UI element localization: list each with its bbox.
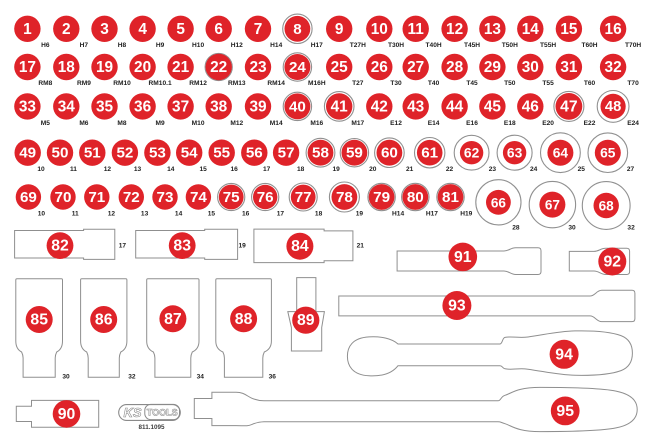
- svg-text:48: 48: [605, 99, 621, 115]
- svg-text:M5: M5: [41, 120, 50, 127]
- svg-text:61: 61: [421, 145, 438, 162]
- svg-text:62: 62: [464, 146, 480, 161]
- svg-text:T60: T60: [584, 80, 596, 87]
- svg-text:12: 12: [104, 166, 112, 173]
- svg-text:75: 75: [223, 189, 240, 206]
- svg-text:33: 33: [19, 98, 36, 115]
- svg-text:17: 17: [263, 166, 271, 173]
- svg-text:64: 64: [553, 146, 569, 161]
- svg-text:12: 12: [108, 210, 116, 217]
- svg-text:12: 12: [446, 21, 463, 38]
- svg-text:60: 60: [381, 145, 398, 162]
- svg-text:23: 23: [489, 166, 497, 173]
- svg-text:RM12: RM12: [189, 80, 207, 87]
- svg-text:18: 18: [297, 166, 305, 173]
- svg-text:37: 37: [172, 98, 189, 115]
- svg-text:11: 11: [72, 210, 79, 217]
- svg-text:E14: E14: [428, 120, 440, 127]
- svg-text:54: 54: [181, 145, 198, 162]
- svg-text:41: 41: [331, 98, 349, 115]
- svg-text:89: 89: [297, 312, 315, 329]
- svg-text:10: 10: [37, 166, 45, 173]
- svg-text:18: 18: [315, 210, 323, 217]
- svg-text:T27H: T27H: [350, 42, 366, 49]
- svg-text:50: 50: [52, 145, 69, 162]
- svg-text:68: 68: [599, 199, 615, 214]
- svg-text:38: 38: [210, 98, 228, 115]
- svg-text:45: 45: [484, 98, 502, 115]
- svg-text:E16: E16: [466, 120, 478, 127]
- svg-text:RM14: RM14: [267, 80, 285, 87]
- svg-text:T45: T45: [466, 80, 478, 87]
- svg-text:25: 25: [331, 59, 349, 76]
- svg-text:H19: H19: [460, 210, 472, 217]
- svg-text:T55: T55: [542, 80, 554, 87]
- svg-text:63: 63: [507, 146, 523, 161]
- svg-text:13: 13: [134, 166, 142, 173]
- svg-text:13: 13: [141, 210, 149, 217]
- svg-text:40: 40: [289, 98, 306, 115]
- svg-text:19: 19: [96, 59, 113, 76]
- svg-text:28: 28: [512, 224, 520, 231]
- svg-text:9: 9: [335, 21, 344, 38]
- svg-text:59: 59: [346, 145, 363, 162]
- svg-text:16: 16: [231, 166, 239, 173]
- svg-text:H8: H8: [118, 42, 127, 49]
- svg-text:35: 35: [96, 98, 114, 115]
- svg-text:66: 66: [491, 195, 507, 210]
- svg-text:47: 47: [560, 98, 578, 115]
- svg-text:RM10: RM10: [113, 80, 131, 87]
- svg-text:81: 81: [442, 189, 459, 206]
- svg-text:3: 3: [100, 21, 109, 38]
- svg-text:8: 8: [293, 21, 301, 38]
- svg-text:T45H: T45H: [464, 42, 480, 49]
- svg-text:E18: E18: [504, 120, 516, 127]
- svg-text:95: 95: [556, 403, 574, 420]
- svg-text:H17: H17: [426, 210, 438, 217]
- svg-text:92: 92: [604, 254, 622, 271]
- svg-text:27: 27: [627, 166, 635, 173]
- svg-text:30: 30: [568, 224, 576, 231]
- svg-text:11: 11: [70, 166, 77, 173]
- svg-text:M14: M14: [270, 120, 283, 127]
- svg-text:M12: M12: [230, 120, 243, 127]
- svg-text:83: 83: [173, 238, 191, 255]
- svg-text:T70: T70: [627, 80, 639, 87]
- svg-text:17: 17: [277, 210, 285, 217]
- svg-text:7: 7: [254, 21, 263, 38]
- svg-text:20: 20: [369, 166, 377, 173]
- svg-text:78: 78: [336, 189, 353, 206]
- svg-text:H10: H10: [192, 42, 204, 49]
- svg-text:51: 51: [84, 145, 101, 162]
- svg-text:30: 30: [62, 373, 70, 380]
- svg-text:TOOLS: TOOLS: [147, 407, 178, 417]
- svg-text:13: 13: [484, 21, 501, 38]
- svg-text:17: 17: [19, 59, 36, 76]
- svg-text:T30H: T30H: [388, 42, 404, 49]
- svg-text:T27: T27: [352, 80, 364, 87]
- svg-text:M9: M9: [156, 120, 165, 127]
- svg-text:55: 55: [213, 145, 230, 162]
- svg-text:30: 30: [522, 59, 539, 76]
- svg-text:14: 14: [522, 21, 540, 38]
- svg-text:19: 19: [239, 242, 247, 249]
- svg-text:18: 18: [58, 59, 76, 76]
- svg-text:85: 85: [30, 312, 48, 329]
- svg-text:15: 15: [200, 166, 208, 173]
- svg-text:28: 28: [446, 59, 464, 76]
- svg-text:39: 39: [249, 98, 266, 115]
- svg-text:72: 72: [123, 189, 140, 206]
- svg-text:90: 90: [58, 406, 76, 423]
- svg-text:H17: H17: [311, 42, 323, 49]
- svg-text:77: 77: [295, 189, 312, 206]
- svg-text:76: 76: [257, 189, 274, 206]
- svg-text:H6: H6: [41, 42, 50, 49]
- svg-text:5: 5: [176, 21, 185, 38]
- svg-text:10: 10: [371, 21, 388, 38]
- svg-text:6: 6: [214, 21, 223, 38]
- svg-text:T50: T50: [504, 80, 516, 87]
- svg-text:RM10.1: RM10.1: [149, 80, 172, 87]
- svg-text:H7: H7: [80, 42, 89, 49]
- svg-text:H14: H14: [392, 210, 404, 217]
- svg-text:88: 88: [235, 311, 253, 328]
- svg-text:H9: H9: [156, 42, 165, 49]
- svg-text:M6: M6: [79, 120, 88, 127]
- svg-text:H12: H12: [231, 42, 243, 49]
- svg-text:RM8: RM8: [38, 80, 52, 87]
- svg-text:2: 2: [62, 21, 71, 38]
- svg-text:RM13: RM13: [228, 80, 246, 87]
- svg-text:M10: M10: [192, 120, 205, 127]
- svg-text:E24: E24: [627, 120, 639, 127]
- svg-text:53: 53: [149, 145, 166, 162]
- svg-text:91: 91: [454, 249, 472, 266]
- svg-text:25: 25: [578, 166, 586, 173]
- svg-text:RM9: RM9: [77, 80, 91, 87]
- svg-text:21: 21: [406, 166, 414, 173]
- svg-text:16: 16: [242, 210, 250, 217]
- svg-text:21: 21: [172, 59, 190, 76]
- svg-text:43: 43: [407, 98, 424, 115]
- svg-text:87: 87: [164, 311, 182, 328]
- svg-text:71: 71: [88, 189, 105, 206]
- svg-text:52: 52: [116, 145, 133, 162]
- svg-text:E12: E12: [390, 120, 402, 127]
- svg-text:20: 20: [134, 59, 151, 76]
- svg-text:57: 57: [278, 145, 295, 162]
- svg-text:24: 24: [289, 59, 306, 76]
- svg-text:46: 46: [522, 98, 539, 115]
- svg-text:19: 19: [333, 166, 341, 173]
- svg-text:811.1095: 811.1095: [139, 424, 165, 431]
- svg-text:H14: H14: [270, 42, 282, 49]
- svg-text:T55H: T55H: [540, 42, 556, 49]
- svg-text:84: 84: [291, 238, 309, 255]
- svg-text:1: 1: [23, 21, 32, 38]
- svg-text:4: 4: [138, 21, 147, 38]
- svg-text:T50H: T50H: [502, 42, 518, 49]
- svg-text:49: 49: [19, 145, 36, 162]
- svg-text:65: 65: [600, 146, 616, 161]
- svg-text:29: 29: [484, 59, 501, 76]
- svg-text:16: 16: [605, 21, 622, 38]
- svg-text:94: 94: [555, 346, 573, 363]
- svg-text:42: 42: [371, 98, 388, 115]
- svg-text:T70H: T70H: [625, 42, 641, 49]
- svg-text:22: 22: [210, 59, 227, 76]
- svg-text:T60H: T60H: [581, 42, 597, 49]
- svg-text:19: 19: [356, 210, 364, 217]
- svg-text:32: 32: [128, 373, 136, 380]
- svg-text:58: 58: [312, 145, 329, 162]
- svg-text:24: 24: [530, 166, 538, 173]
- svg-text:10: 10: [38, 210, 46, 217]
- svg-text:69: 69: [20, 189, 37, 206]
- svg-text:27: 27: [407, 59, 424, 76]
- svg-text:36: 36: [269, 373, 277, 380]
- svg-text:32: 32: [605, 59, 622, 76]
- svg-text:82: 82: [51, 238, 69, 255]
- svg-text:11: 11: [408, 21, 425, 38]
- svg-text:36: 36: [134, 98, 151, 115]
- svg-text:93: 93: [448, 298, 466, 315]
- svg-text:M17: M17: [351, 120, 364, 127]
- svg-text:80: 80: [407, 189, 424, 206]
- svg-text:31: 31: [560, 59, 578, 76]
- svg-text:17: 17: [119, 242, 127, 249]
- svg-text:34: 34: [197, 373, 205, 380]
- svg-text:15: 15: [208, 210, 216, 217]
- svg-text:T30: T30: [390, 80, 402, 87]
- svg-text:T40: T40: [428, 80, 440, 87]
- svg-text:26: 26: [371, 59, 388, 76]
- svg-text:KS: KS: [123, 405, 141, 420]
- svg-text:T40H: T40H: [426, 42, 442, 49]
- svg-text:79: 79: [373, 189, 390, 206]
- svg-text:15: 15: [560, 21, 578, 38]
- svg-text:70: 70: [55, 189, 72, 206]
- svg-text:73: 73: [157, 189, 174, 206]
- svg-text:M16: M16: [310, 120, 323, 127]
- svg-text:M16H: M16H: [308, 80, 326, 87]
- svg-text:E22: E22: [584, 120, 596, 127]
- svg-text:34: 34: [58, 98, 76, 115]
- svg-text:21: 21: [357, 243, 365, 250]
- svg-text:32: 32: [627, 224, 635, 231]
- svg-text:22: 22: [446, 166, 454, 173]
- svg-text:56: 56: [246, 145, 263, 162]
- svg-text:67: 67: [545, 198, 560, 213]
- svg-text:86: 86: [95, 312, 113, 329]
- svg-text:14: 14: [167, 166, 175, 173]
- svg-text:74: 74: [190, 189, 207, 206]
- svg-text:44: 44: [446, 98, 464, 115]
- svg-text:23: 23: [249, 59, 266, 76]
- svg-text:14: 14: [175, 210, 183, 217]
- svg-text:M8: M8: [117, 120, 126, 127]
- svg-text:E20: E20: [542, 120, 554, 127]
